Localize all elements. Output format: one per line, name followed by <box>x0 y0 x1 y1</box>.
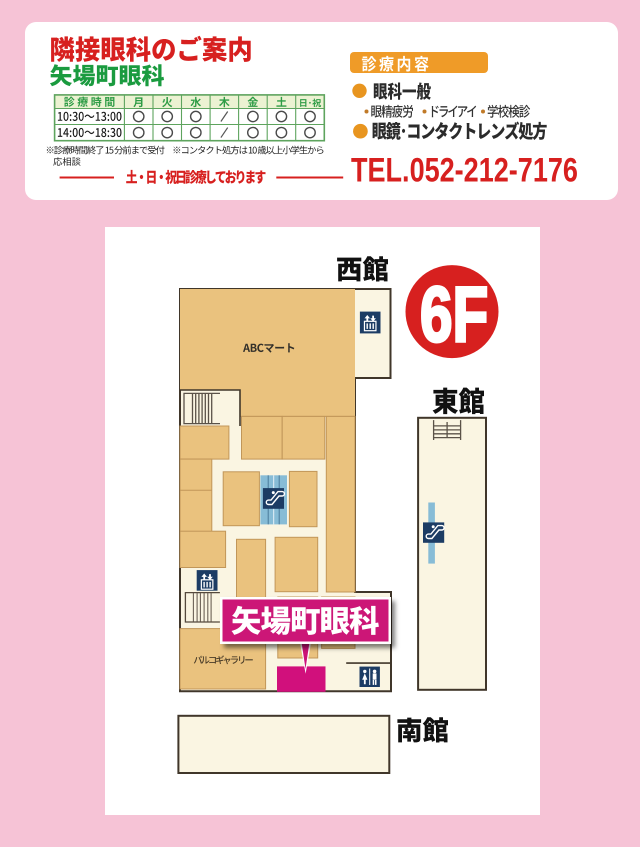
svg-text:6F: 6F <box>420 271 488 358</box>
svg-text:TEL.052-212-7176: TEL.052-212-7176 <box>351 150 578 189</box>
